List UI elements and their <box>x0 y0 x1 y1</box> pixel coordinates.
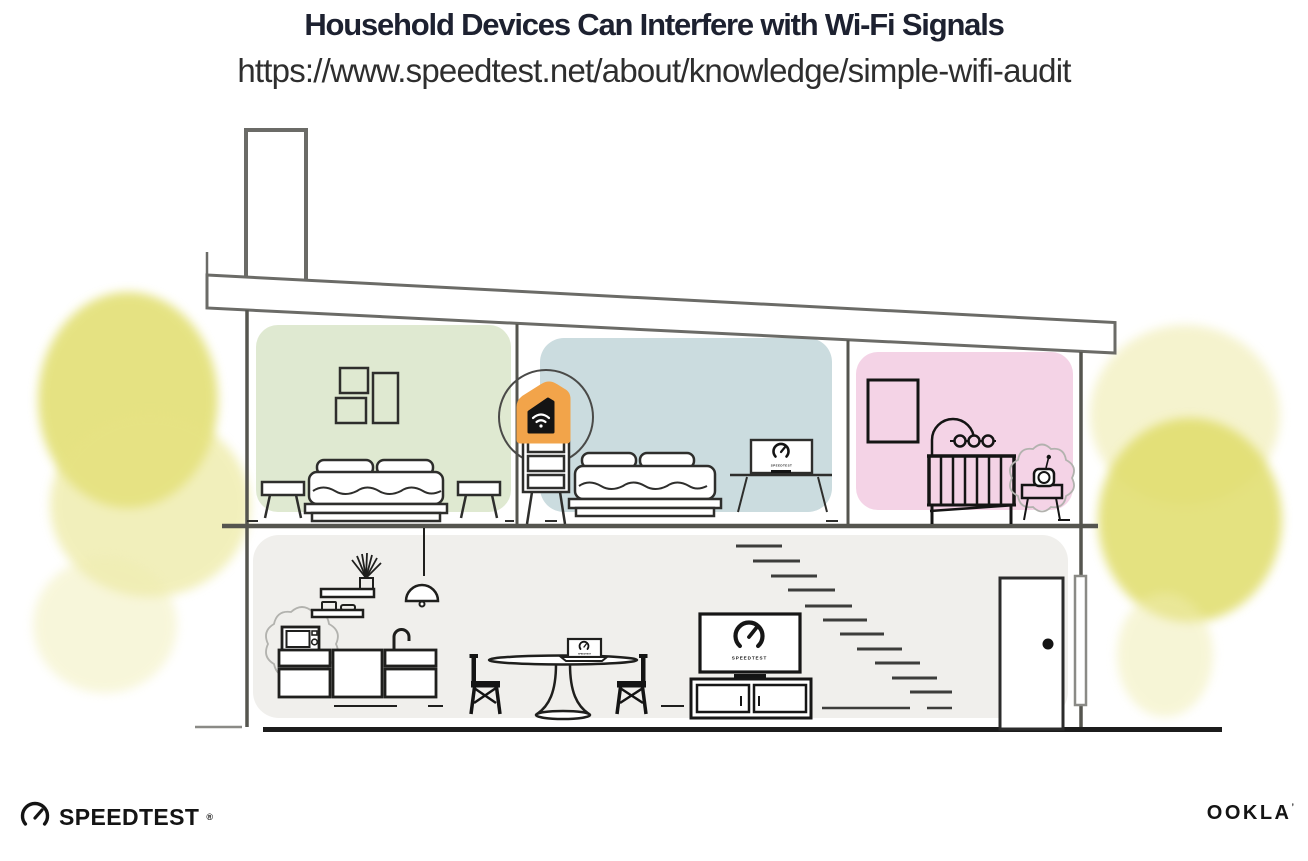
screen-brand-label: SPEEDTEST <box>732 656 767 661</box>
speedtest-gauge-icon <box>18 800 52 834</box>
ookla-wordmark: OOKLA <box>1207 802 1292 824</box>
infographic-page: Household Devices Can Interfere with Wi-… <box>0 0 1308 861</box>
door-knob <box>1043 639 1054 650</box>
speedtest-wordmark: SPEEDTEST <box>59 802 199 832</box>
router-shelf <box>523 431 569 524</box>
foliage-right <box>1090 325 1282 717</box>
bedroom-monitor: SPEEDTEST <box>751 440 812 473</box>
screen-brand-label: SPEEDTEST <box>771 464 792 468</box>
media-console <box>691 679 811 718</box>
microwave-oven <box>282 627 319 651</box>
screen-brand-label: SPEEDTEST <box>578 654 592 656</box>
ookla-reg-mark: ’ <box>1291 802 1294 812</box>
front-door <box>1000 578 1063 729</box>
speedtest-reg-mark: ® <box>206 810 213 824</box>
foliage-left <box>33 292 250 693</box>
living-room-tv: SPEEDTEST <box>700 614 800 678</box>
downspout-pipe <box>1075 576 1086 705</box>
bed <box>305 460 447 521</box>
ookla-logo: OOKLA’ <box>1207 802 1294 825</box>
living-room: SPEEDTEST <box>691 614 811 718</box>
chimney <box>244 130 308 288</box>
speedtest-logo: SPEEDTEST® <box>18 800 213 834</box>
house-illustration: SPEEDTEST <box>0 0 1308 861</box>
dining-table-laptop: SPEEDTEST <box>561 639 607 661</box>
